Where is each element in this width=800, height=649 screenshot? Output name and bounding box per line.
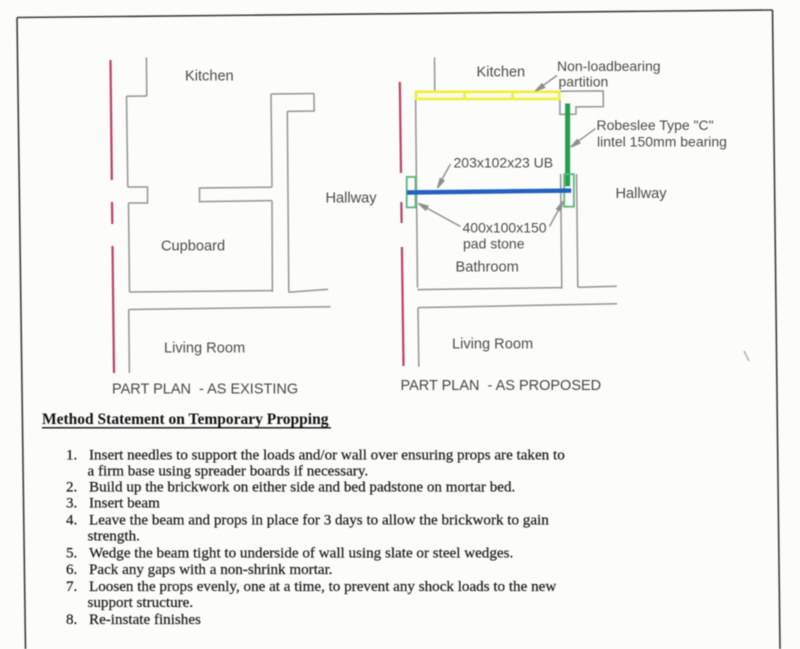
svg-text:partition: partition <box>559 74 609 90</box>
svg-text:PART PLAN - AS PROPOSED: PART PLAN - AS PROPOSED <box>401 378 602 394</box>
svg-text:Insert beam: Insert beam <box>89 496 160 512</box>
svg-text:Wedge the beam tight to unders: Wedge the beam tight to underside of wal… <box>89 545 513 561</box>
svg-text:Kitchen: Kitchen <box>477 65 526 81</box>
svg-text:strength.: strength. <box>88 529 140 545</box>
svg-text:Living Room: Living Room <box>164 341 245 357</box>
svg-text:support structure.: support structure. <box>88 595 194 611</box>
svg-text:Hallway: Hallway <box>616 186 668 202</box>
svg-text:Bathroom: Bathroom <box>456 260 519 276</box>
svg-text:Kitchen: Kitchen <box>185 69 234 85</box>
svg-text:a firm base using spreader boa: a firm base using spreader boards if nec… <box>88 464 369 480</box>
svg-text:5.: 5. <box>66 545 77 561</box>
svg-text:203x102x23 UB: 203x102x23 UB <box>454 155 554 171</box>
svg-text:Living Room: Living Room <box>452 337 533 353</box>
svg-text:4.: 4. <box>66 513 77 529</box>
svg-text:Hallway: Hallway <box>326 191 378 207</box>
svg-text:6.: 6. <box>66 562 77 578</box>
svg-text:lintel 150mm bearing: lintel 150mm bearing <box>597 134 727 150</box>
svg-text:Pack any gaps with a non-shrin: Pack any gaps with a non-shrink mortar. <box>89 562 333 578</box>
svg-text:Leave the beam and props in pl: Leave the beam and props in place for 3 … <box>89 513 549 529</box>
svg-text:Loosen the props evenly, one a: Loosen the props evenly, one at a time, … <box>89 579 556 595</box>
svg-text:1.: 1. <box>66 447 77 463</box>
svg-text:8.: 8. <box>66 612 77 628</box>
svg-text:400x100x150: 400x100x150 <box>463 220 547 236</box>
svg-text:Build up the brickwork on eith: Build up the brickwork on either side an… <box>89 480 515 496</box>
svg-text:Non-loadbearing: Non-loadbearing <box>557 58 661 74</box>
svg-text:3.: 3. <box>66 496 77 512</box>
svg-text:Robeslee Type "C": Robeslee Type "C" <box>597 117 714 133</box>
svg-text:Cupboard: Cupboard <box>161 239 225 255</box>
svg-text:7.: 7. <box>66 579 77 595</box>
svg-text:Method Statement on Temporary: Method Statement on Temporary Propping <box>42 411 329 428</box>
svg-text:Insert needles to support the: Insert needles to support the loads and/… <box>89 447 565 463</box>
svg-text:pad stone: pad stone <box>463 236 525 252</box>
svg-text:Re-instate finishes: Re-instate finishes <box>89 612 201 628</box>
svg-text:PART PLAN - AS EXISTING: PART PLAN - AS EXISTING <box>112 382 298 398</box>
svg-text:2.: 2. <box>66 480 77 496</box>
